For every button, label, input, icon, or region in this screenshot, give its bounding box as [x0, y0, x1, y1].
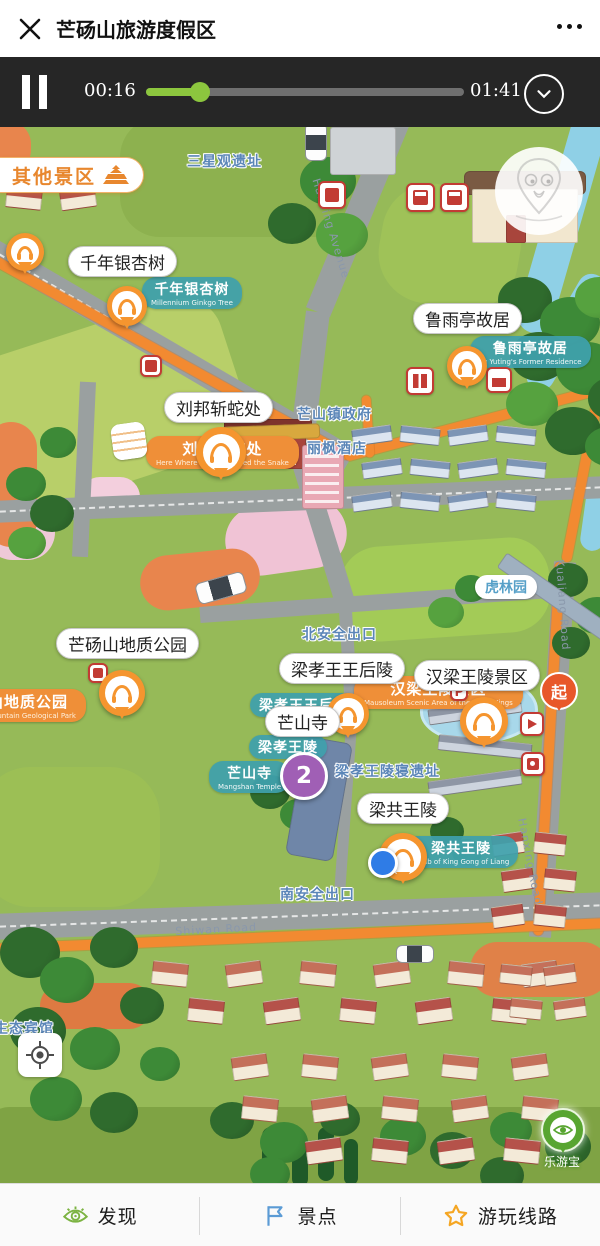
tree — [268, 203, 316, 244]
tree — [6, 467, 46, 501]
poi-bus-icon — [440, 183, 469, 212]
house — [373, 960, 412, 989]
headphone-glyph — [118, 299, 136, 313]
scenic-banner-subtitle: Mangdang Mountain Geological Park — [0, 712, 76, 720]
site-bubble-label: 芒山寺 — [218, 763, 281, 783]
house — [225, 960, 264, 989]
tab-tour-routes-label: 游玩线路 — [478, 1202, 558, 1229]
house — [151, 960, 189, 988]
hotel-windows — [305, 451, 339, 503]
headphone-icon — [112, 291, 142, 321]
poi-toilet-icon — [406, 367, 434, 395]
pagoda-icon — [103, 165, 129, 185]
house — [381, 1095, 419, 1123]
crosshair-icon — [25, 1040, 55, 1070]
eye-icon — [550, 1117, 576, 1143]
audio-guide-pin[interactable] — [447, 346, 487, 386]
play-glyph — [528, 719, 542, 729]
place-name-text: 芒山镇政府 — [297, 404, 372, 424]
tree — [30, 1077, 82, 1121]
close-icon[interactable] — [16, 15, 44, 43]
audio-guide-pin[interactable] — [99, 670, 145, 716]
site-bubble-subtitle: Millennium Ginkgo Tree — [151, 299, 233, 307]
camera-glyph — [527, 758, 539, 770]
house — [339, 997, 377, 1025]
map-callout[interactable]: 芒山寺 — [265, 706, 340, 737]
bus-glyph — [447, 190, 463, 206]
house — [409, 458, 451, 479]
tree — [40, 957, 94, 1003]
house — [231, 1053, 270, 1082]
eye-icon — [62, 1202, 89, 1229]
house — [533, 903, 567, 928]
scenic-banner-label: 芒砀山地质公园 — [0, 691, 76, 712]
house — [511, 1053, 550, 1082]
progress-track[interactable] — [146, 88, 464, 96]
terrain-patch — [344, 1139, 358, 1183]
collapse-player-button[interactable] — [524, 74, 564, 114]
headphone-icon — [203, 434, 240, 471]
house — [495, 491, 537, 512]
tab-discover-label: 发现 — [98, 1202, 138, 1229]
tab-scenic-spots[interactable]: 景点 — [200, 1184, 399, 1246]
toilet-glyph — [413, 374, 428, 389]
tree — [30, 495, 74, 532]
tree — [90, 1092, 138, 1133]
house — [457, 457, 499, 479]
house — [305, 1137, 344, 1166]
map-callout[interactable]: 梁孝王王后陵 — [279, 653, 405, 684]
bottom-tab-bar: 发现 景点 游玩线路 — [0, 1183, 600, 1246]
house — [399, 491, 441, 512]
terrain-patch — [0, 767, 160, 907]
map-callout[interactable]: 汉梁王陵景区 — [414, 660, 540, 691]
poi-shop-icon — [318, 181, 346, 209]
house — [361, 457, 403, 479]
house — [509, 997, 543, 1020]
audio-guide-pin[interactable] — [196, 427, 246, 477]
site-bubble-label: 千年银杏树 — [151, 279, 233, 299]
house — [437, 1137, 476, 1166]
poi-hotel-icon — [486, 367, 512, 393]
headphone-glyph — [339, 707, 358, 721]
house — [447, 960, 485, 988]
elapsed-time: 00:16 — [84, 80, 136, 101]
current-location-dot — [368, 848, 398, 878]
headphone-icon — [466, 703, 502, 739]
audio-guide-pin[interactable] — [107, 286, 147, 326]
house — [187, 997, 225, 1025]
house — [543, 867, 577, 892]
leyoubao-pin[interactable] — [541, 1108, 585, 1152]
tree — [70, 1027, 120, 1070]
tab-discover[interactable]: 发现 — [0, 1184, 199, 1246]
house — [415, 997, 454, 1026]
site-bubble-label: 鲁雨亭故居 — [479, 338, 582, 358]
flag-icon — [262, 1203, 288, 1229]
poi-play-icon — [520, 712, 544, 736]
place-name-text: 南安全出口 — [280, 884, 355, 904]
place-name-text: 丽枫酒店 — [307, 438, 367, 458]
top-bar: 芒砀山旅游度假区 — [0, 0, 600, 57]
tree — [428, 597, 464, 628]
map-canvas[interactable]: 其他景区 2 起 — [0, 127, 600, 1183]
headphone-icon — [105, 676, 139, 710]
house — [301, 1053, 339, 1081]
poi-camera-icon — [521, 752, 545, 776]
site-bubble: 芒山寺Mangshan Temple — [209, 761, 290, 793]
headphone-icon — [11, 238, 39, 266]
building — [330, 127, 396, 175]
house — [263, 997, 302, 1026]
house — [299, 960, 337, 988]
hotel-glyph — [492, 373, 506, 387]
progress-thumb[interactable] — [190, 82, 210, 102]
house — [241, 1095, 279, 1123]
house — [427, 769, 522, 798]
house — [451, 1095, 490, 1124]
tree — [90, 927, 138, 968]
site-bubble-label: 梁共王陵 — [413, 838, 509, 858]
other-scenic-areas-label: 其他景区 — [12, 162, 96, 189]
other-scenic-areas-badge[interactable]: 其他景区 — [0, 157, 144, 193]
stop-number-badge[interactable]: 2 — [280, 752, 328, 800]
site-bubble-subtitle: Tomb of King Gong of Liang — [413, 858, 509, 866]
house — [441, 1053, 479, 1081]
app-screen: 芒砀山旅游度假区 00:16 01:41 其他景区 — [0, 0, 600, 1246]
audio-guide-pin[interactable] — [6, 233, 44, 271]
site-bubble: 鲁雨亭故居Lu Yuting's Former Residence — [470, 336, 591, 368]
total-time: 01:41 — [470, 80, 522, 101]
map-logo-watermark-icon — [494, 146, 584, 236]
headphone-glyph — [210, 443, 232, 460]
house — [499, 963, 533, 986]
shop-glyph — [325, 188, 340, 203]
poi-fuel-icon — [406, 183, 435, 212]
site-bubble-subtitle: Lu Yuting's Former Residence — [479, 358, 582, 366]
site-bubble-subtitle: Mangshan Temple — [218, 783, 281, 791]
house — [553, 997, 587, 1021]
tab-scenic-spots-label: 景点 — [297, 1202, 337, 1229]
star-icon — [443, 1203, 469, 1229]
scenic-banner: 芒砀山地质公园Mangdang Mountain Geological Park — [0, 689, 86, 722]
place-name-text: 北安全出口 — [302, 624, 377, 644]
house — [371, 1053, 410, 1082]
headphone-glyph — [473, 713, 494, 729]
poi-sign-icon — [140, 355, 162, 377]
thumbs-up-icon — [110, 421, 149, 461]
headphone-glyph — [112, 685, 132, 701]
audio-player-bar: 00:16 01:41 — [0, 57, 600, 127]
tree — [140, 1047, 180, 1081]
sign-glyph — [145, 360, 156, 371]
house — [371, 1137, 409, 1165]
audio-guide-pin[interactable] — [460, 697, 508, 745]
headphone-glyph — [17, 246, 34, 259]
house — [495, 425, 537, 446]
tree — [8, 527, 46, 559]
van — [396, 945, 434, 963]
house — [533, 831, 567, 856]
tab-tour-routes[interactable]: 游玩线路 — [401, 1184, 600, 1246]
place-name-text: 梁孝王陵寝遗址 — [335, 761, 440, 781]
headphone-glyph — [458, 359, 476, 373]
house — [311, 1095, 350, 1124]
fuel-glyph — [413, 190, 429, 206]
place-name-text: 三星观遗址 — [187, 151, 262, 171]
tree — [40, 427, 76, 458]
page-title: 芒砀山旅游度假区 — [56, 14, 216, 43]
car — [305, 127, 327, 161]
house — [505, 458, 547, 479]
pause-button[interactable] — [22, 75, 52, 109]
sign-glyph — [93, 668, 103, 678]
more-menu-icon[interactable] — [557, 24, 582, 29]
tree — [120, 987, 164, 1024]
headphone-icon — [452, 351, 482, 381]
map-callout[interactable]: 梁共王陵 — [357, 793, 449, 824]
map-callout[interactable]: 鲁雨亭故居 — [413, 303, 522, 334]
map-callout[interactable]: 千年银杏树 — [68, 246, 177, 277]
map-callout[interactable]: 芒砀山地质公园 — [56, 628, 199, 659]
locate-button[interactable] — [18, 1033, 62, 1077]
route-start-pin[interactable]: 起 — [540, 672, 578, 710]
site-bubble: 千年银杏树Millennium Ginkgo Tree — [142, 277, 242, 309]
map-callout[interactable]: 刘邦斩蛇处 — [164, 392, 273, 423]
site-bubble-white: 虎林园 — [475, 575, 537, 599]
house — [491, 903, 526, 929]
leyoubao-label: 乐游宝 — [534, 1153, 590, 1170]
tree — [250, 1157, 290, 1183]
